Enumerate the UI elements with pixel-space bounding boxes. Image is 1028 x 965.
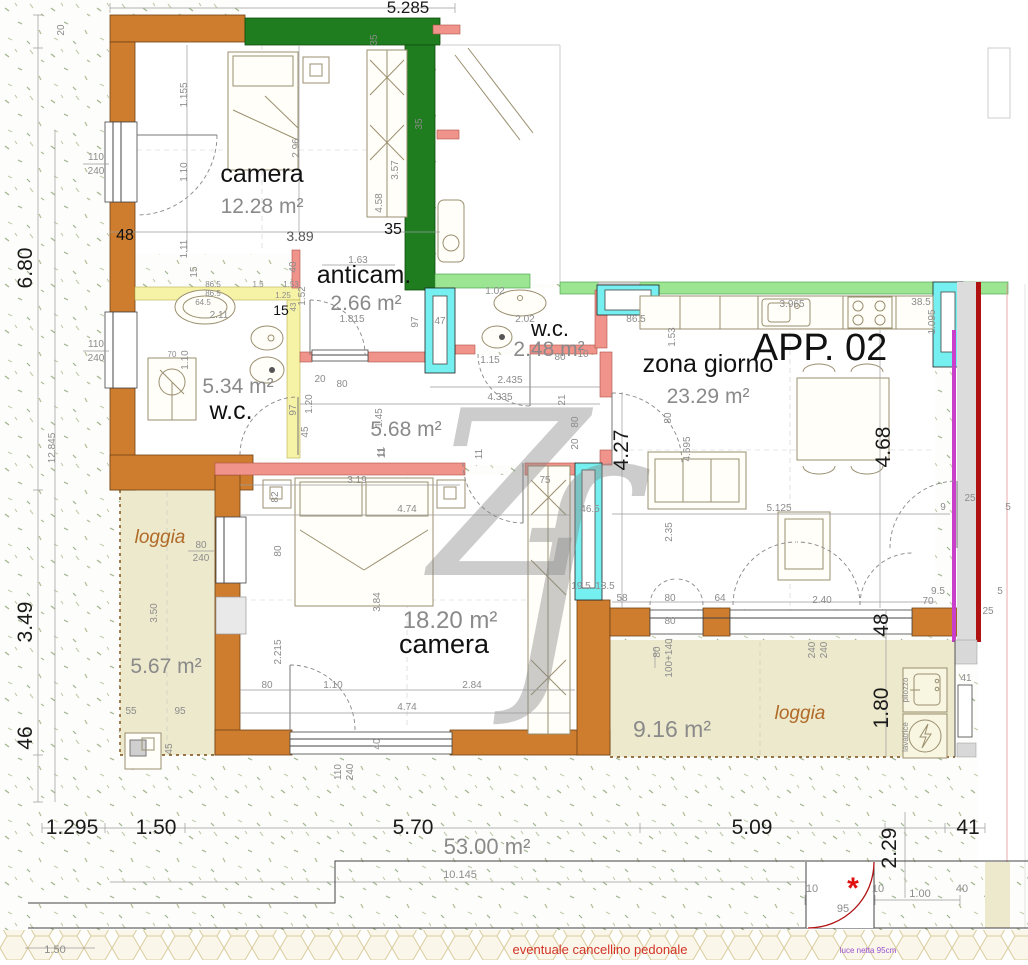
armchair: [778, 512, 830, 580]
dim: 110: [88, 339, 104, 350]
dim: 80: [336, 379, 348, 390]
floor-plan-drawing: pilozzo lavatrice Z ſ: [0, 0, 1028, 960]
room-name: loggia: [775, 703, 826, 724]
dim: 240: [88, 166, 105, 177]
dim: 5.70: [393, 816, 434, 839]
dim: 1.155: [179, 82, 190, 107]
dim: 4.335: [487, 392, 512, 403]
dim: 3.50: [149, 603, 160, 623]
room-name: camera: [220, 160, 303, 188]
dim: 19.5: [571, 581, 591, 592]
dim: 35: [369, 34, 380, 46]
lavatrice-label: lavatrice: [901, 722, 910, 752]
dim: 20: [570, 438, 581, 450]
dim: 240: [819, 641, 830, 658]
dim: 41: [960, 673, 972, 684]
neighbor-area: [440, 0, 1028, 284]
dim: 80: [663, 412, 674, 424]
dim: 3.965: [779, 299, 804, 310]
dim: 5.285: [387, 0, 430, 17]
dim: 10.145: [443, 869, 477, 881]
dim: 1.20: [304, 394, 315, 414]
total-area: 53.00 m²: [444, 834, 531, 859]
dim: 86.5: [626, 314, 646, 325]
dim: 58: [616, 593, 628, 604]
dim: 110: [333, 764, 344, 780]
dim: 48: [870, 613, 893, 636]
pilozzo-label: pilozzo: [901, 677, 910, 702]
dim: 80: [664, 593, 676, 604]
dim: 1.50: [44, 944, 65, 956]
dim: 80: [652, 646, 663, 658]
dim: 6.80: [14, 248, 37, 289]
dim: 46: [14, 726, 37, 749]
dim: 4.58: [374, 193, 385, 213]
floor-plan-page: pilozzo lavatrice Z ſ: [0, 0, 1028, 960]
dim: 86.5: [205, 289, 221, 298]
dim: 240: [88, 353, 105, 364]
dim: 240: [193, 553, 210, 564]
clearance-note: luce netta 95cm: [840, 946, 897, 955]
dim: 10: [806, 883, 818, 895]
dim: 3.57: [390, 160, 401, 180]
right-margin: [978, 284, 1028, 864]
apartment-title: APP. 02: [753, 327, 888, 369]
dim: 1.11: [179, 239, 190, 258]
dim: 5.09: [732, 816, 773, 839]
dim: 80: [570, 416, 581, 428]
dim: 15: [273, 302, 289, 318]
dim: 1.00: [909, 888, 930, 900]
dim: 97: [288, 404, 299, 416]
dim: 3.84: [372, 592, 383, 612]
dim: 2.35: [664, 522, 675, 542]
dim: 46.5: [580, 504, 600, 515]
room-area: 5.34 m²: [202, 375, 273, 398]
dim: 1.63: [348, 255, 368, 266]
dim: 1.53: [667, 327, 678, 347]
gate-note: eventuale cancellino pedonale: [513, 942, 688, 957]
dim: 47: [434, 316, 446, 327]
dim: 80: [273, 545, 284, 557]
dim: 70: [922, 596, 934, 607]
room-name: loggia: [135, 527, 186, 548]
dim: 4.68: [872, 427, 895, 468]
dim: 55: [125, 706, 137, 717]
dim: 1.5: [252, 280, 264, 289]
dim: 80: [554, 352, 566, 363]
dim: 2.215: [273, 639, 284, 664]
dim: 95: [174, 706, 186, 717]
dim: 1.15: [480, 355, 500, 366]
dim: 40: [372, 738, 383, 750]
dim: 2.11: [210, 310, 229, 321]
sofa: [648, 452, 746, 509]
single-bed: [228, 52, 298, 170]
dim: 11: [376, 446, 387, 457]
dim: 110: [88, 152, 104, 163]
dim: 1.295: [46, 816, 99, 839]
dim: 1.53: [283, 280, 299, 289]
dim: 2.29: [878, 828, 901, 869]
dim: 1.10: [180, 350, 191, 370]
dim: 10: [872, 883, 884, 895]
dim: 2.40: [812, 595, 832, 606]
dim: 20: [314, 374, 326, 385]
pedestrian-gate: [806, 862, 874, 928]
dim: 25: [964, 493, 976, 504]
dim: 5: [1005, 502, 1011, 513]
dim: 35: [384, 221, 402, 238]
dim: 82: [270, 491, 281, 503]
dim: 9: [940, 502, 946, 513]
dim: 12.845: [47, 432, 58, 463]
dim: 4.695: [682, 436, 693, 461]
dim: 5: [997, 586, 1003, 597]
dim: 1.02: [485, 286, 505, 297]
room-name: w.c.: [208, 397, 252, 425]
dim: 3.89: [286, 228, 313, 244]
dim: 240: [345, 763, 356, 780]
dim: 40: [956, 883, 968, 895]
dim: 100+140: [664, 638, 675, 678]
dim: 15: [189, 266, 200, 278]
dim: 1.45: [374, 408, 385, 428]
dim: 3.19: [347, 475, 367, 486]
room-area: 9.16 m²: [633, 716, 711, 742]
toilet: [482, 326, 512, 348]
dim: 43: [289, 302, 298, 311]
dim: 45: [300, 426, 311, 438]
dim: 3.49: [14, 602, 37, 643]
dim: 64: [714, 593, 726, 604]
dim: 80: [664, 616, 676, 627]
dim: 1.10: [323, 680, 343, 691]
dim: 2.435: [497, 375, 522, 386]
room-area: 23.29 m²: [667, 385, 750, 408]
dim: 38.5: [911, 297, 931, 308]
room-area: 5.67 m²: [130, 655, 201, 678]
dim: 80: [195, 540, 207, 551]
loggia1-items: [125, 733, 161, 769]
dim: 1.25: [275, 291, 291, 300]
bidet: [251, 326, 283, 350]
dim: 41: [956, 816, 979, 839]
dim: 11: [474, 448, 485, 459]
dim: 1.80: [870, 688, 893, 729]
dim: 86.5: [205, 280, 221, 289]
dim: 25: [982, 606, 994, 617]
dim: 40: [288, 261, 299, 273]
dim: 35: [414, 118, 425, 130]
dim: 45: [164, 743, 175, 755]
dim: 80: [261, 680, 273, 691]
dim: 1.095: [927, 309, 938, 334]
dim: 2.02: [515, 314, 535, 325]
double-bed: [295, 478, 433, 606]
dim: 240: [807, 641, 818, 658]
room-area: 2.48 m²: [513, 338, 584, 361]
room-area: 2.66 m²: [330, 292, 401, 315]
dim: 48: [116, 227, 134, 244]
dim: 1.10: [179, 162, 190, 182]
dim: 97: [410, 316, 421, 328]
dim: 75: [539, 475, 551, 486]
dim: 21: [557, 394, 568, 406]
dim: 1.815: [339, 314, 364, 325]
dim: 4.27: [610, 430, 633, 471]
dim: 4.74: [397, 702, 417, 713]
dim: 2.96: [291, 138, 302, 158]
gate-asterisk: *: [847, 872, 859, 905]
dim: 10: [577, 349, 589, 360]
room-name: camera: [399, 629, 490, 659]
dim: 70: [168, 350, 177, 359]
dim: 20: [56, 24, 67, 36]
dim: 1.50: [136, 816, 177, 839]
dim: 2.84: [462, 680, 482, 691]
dim: 13.5: [595, 581, 615, 592]
dim: 5.125: [766, 503, 791, 514]
dim: 4.74: [397, 504, 417, 515]
room-area: 12.28 m²: [221, 195, 304, 218]
dim: 64.5: [195, 298, 211, 307]
